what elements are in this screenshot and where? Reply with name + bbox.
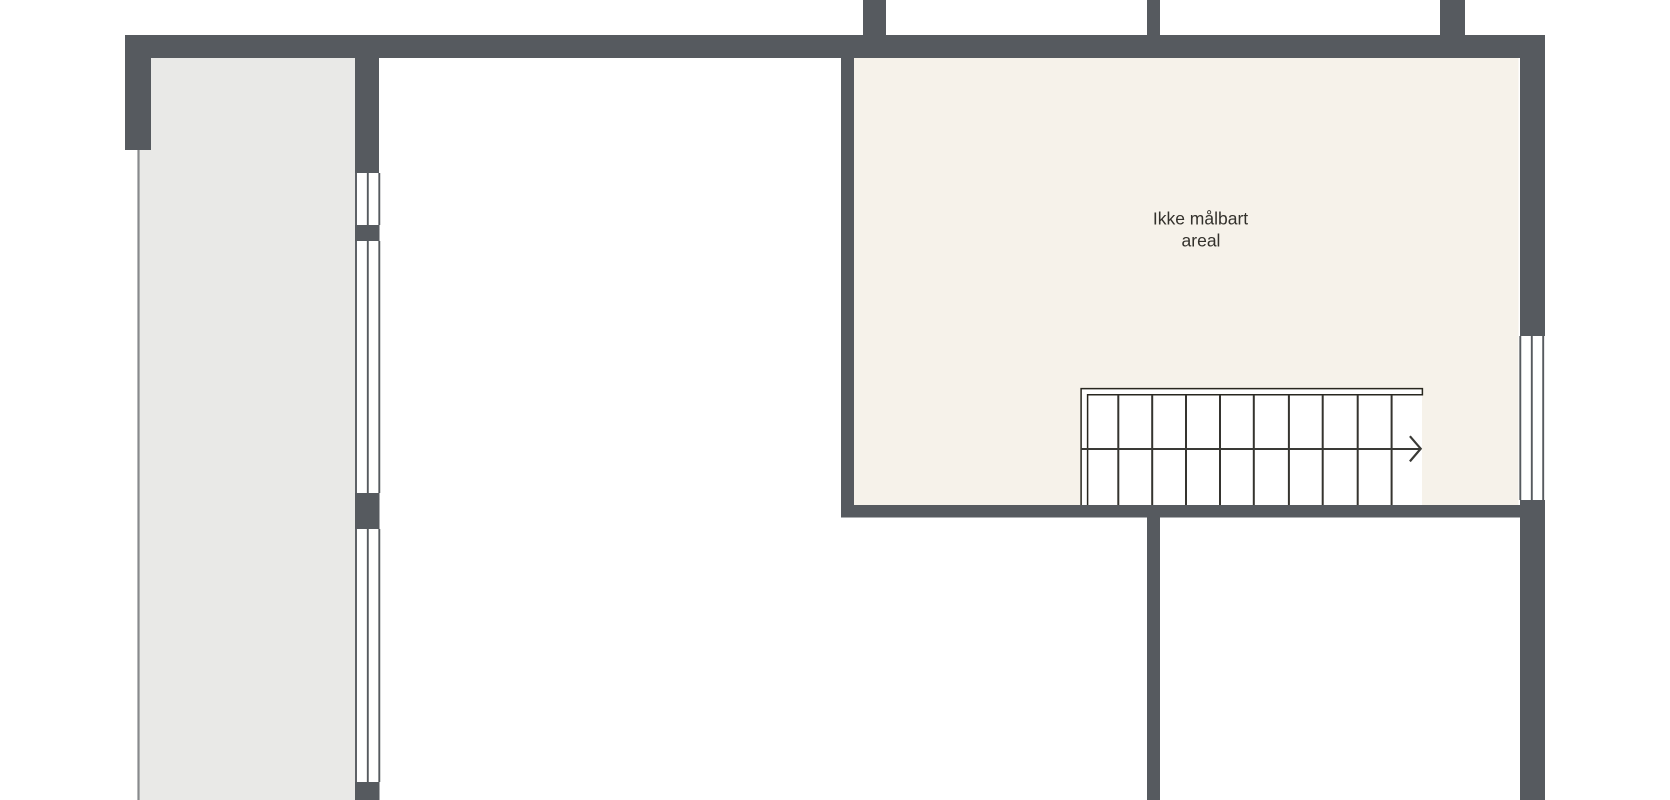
svg-text:Ikke målbart: Ikke målbart bbox=[1153, 209, 1248, 229]
svg-text:areal: areal bbox=[1182, 231, 1221, 251]
